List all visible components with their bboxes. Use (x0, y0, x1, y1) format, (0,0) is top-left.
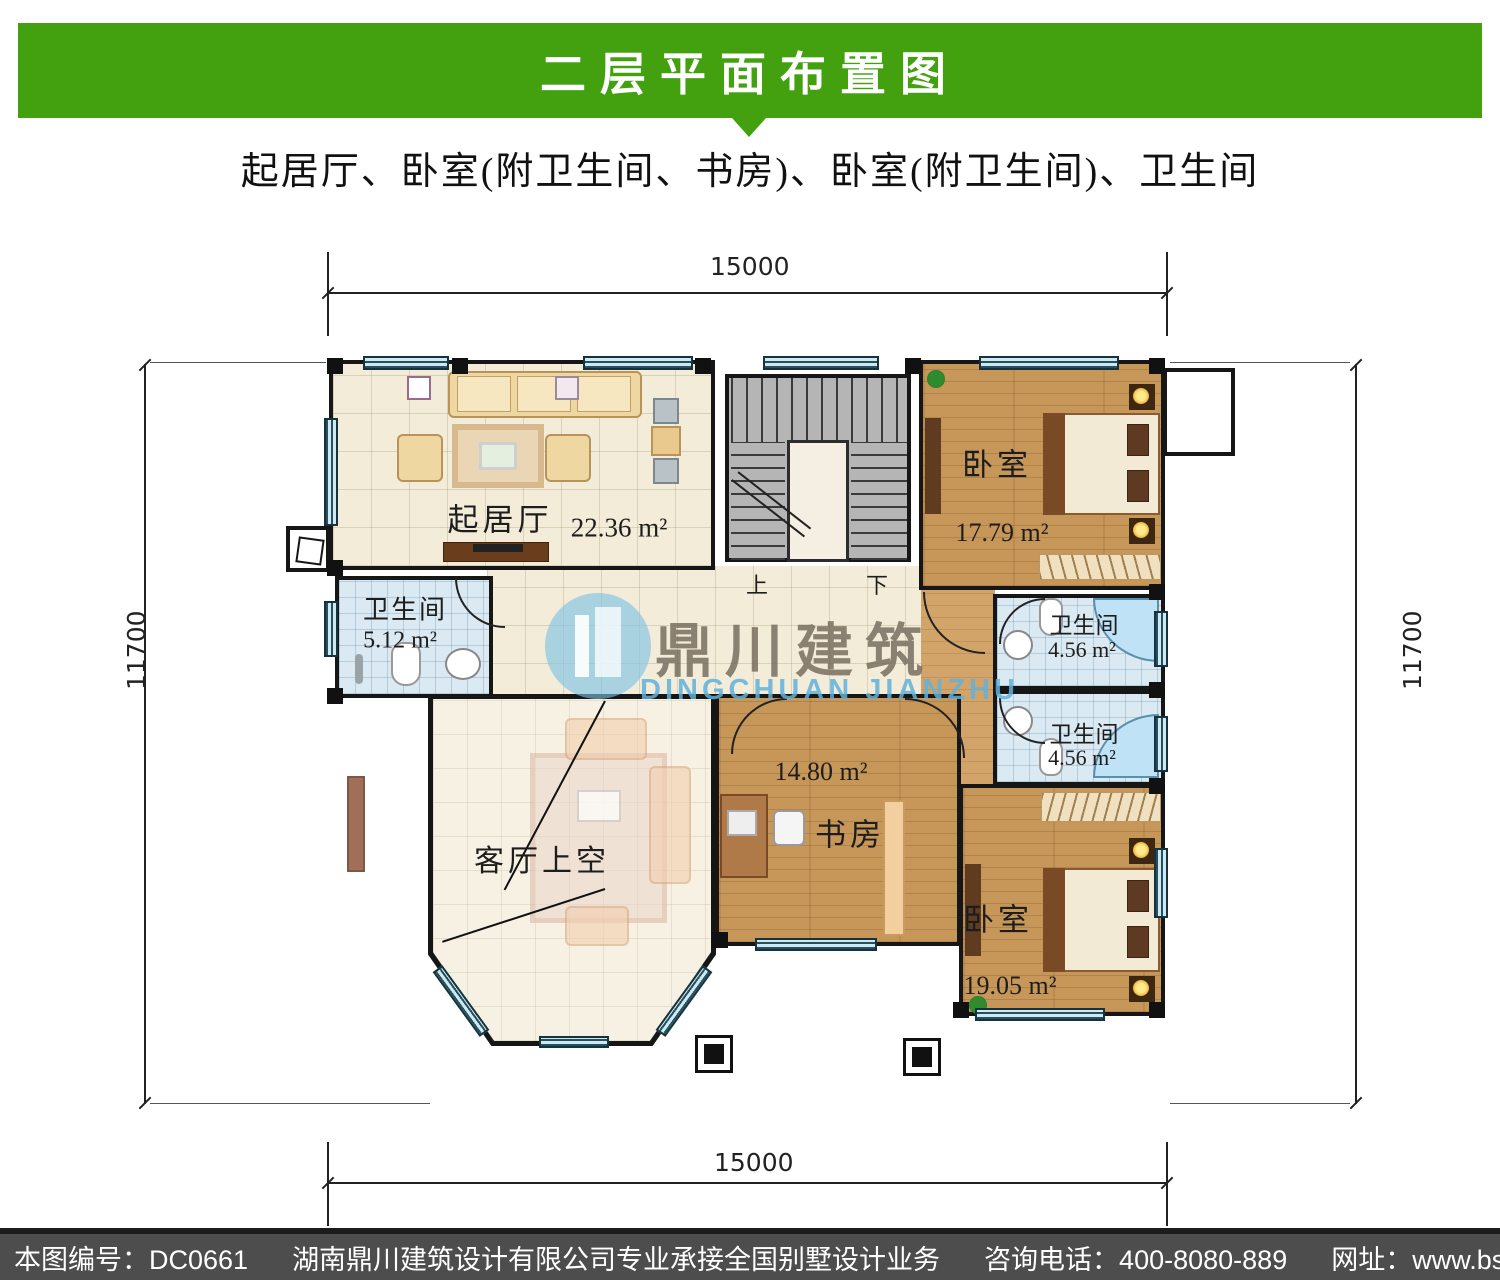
floor-plan: 上 下 (327, 358, 1168, 1105)
tv (473, 544, 523, 552)
nightstand-lamp (1129, 838, 1155, 864)
dim-ext (150, 362, 326, 363)
label-living-name: 起居厅 (448, 495, 553, 540)
column (1149, 584, 1165, 600)
page-title: 二层平面布置图 (540, 38, 960, 104)
column (695, 358, 711, 374)
window (363, 356, 449, 370)
bay-window (539, 1036, 609, 1048)
stair-down-label: 下 (866, 568, 888, 600)
dim-ext (1170, 362, 1350, 363)
living-armchair-left (397, 434, 443, 482)
column (1149, 682, 1165, 698)
window (979, 356, 1119, 370)
bed-foot-runner (1043, 868, 1065, 972)
porch-column-core (912, 1047, 932, 1067)
label-bath-upper-area: 4.56 m² (1048, 637, 1116, 663)
living-coffee-table (479, 442, 517, 470)
pillow (1127, 424, 1149, 456)
dim-bottom-value: 15000 (714, 1148, 794, 1177)
column (327, 688, 343, 704)
wall-jut (1163, 368, 1235, 456)
label-bath-upper-name: 卫生间 (1050, 606, 1119, 640)
label-bath-lower-name: 卫生间 (1050, 715, 1119, 749)
window (583, 356, 693, 370)
pillow (1127, 470, 1149, 502)
void-table (577, 790, 621, 822)
label-bath-lower-area: 4.56 m² (1048, 745, 1116, 771)
dim-ext (1170, 1103, 1350, 1104)
bedroom-tv-cabinet (925, 418, 941, 514)
bedroom-rug (1039, 554, 1161, 580)
column (327, 358, 343, 374)
stair-steps-right (851, 442, 907, 560)
nightstand-lamp (1129, 518, 1155, 544)
living-decor-frame (555, 376, 579, 400)
living-armchair-right (545, 434, 591, 482)
void-sofa-right (649, 766, 691, 884)
void-cabinet (347, 776, 365, 872)
wardrobe (1041, 792, 1161, 822)
stair-up-label: 上 (746, 568, 768, 600)
dim-line-left (144, 364, 146, 1104)
porch-column-core (704, 1044, 724, 1064)
label-bath-left-name: 卫生间 (363, 590, 447, 627)
study-chair (773, 810, 805, 846)
dim-line-bottom (327, 1182, 1168, 1184)
footer-company: 湖南鼎川建筑设计有限公司专业承接全国别墅设计业务 (292, 1238, 940, 1277)
dim-top-value: 15000 (710, 252, 790, 281)
label-bath-left-area: 5.12 m² (363, 628, 437, 655)
label-bedroom-bottom-area: 19.05 m² (963, 971, 1056, 1001)
pillow (1127, 926, 1149, 958)
porch-column (695, 1035, 733, 1073)
stair-steps-top (731, 378, 907, 442)
window (1154, 716, 1168, 772)
banner-pointer-triangle (732, 118, 766, 137)
column (1149, 1002, 1165, 1018)
dining-table (651, 426, 681, 456)
desk-monitor (727, 810, 757, 836)
window (324, 601, 338, 657)
dim-line-right (1355, 364, 1357, 1104)
plant (927, 370, 945, 388)
window (324, 418, 338, 526)
column (1149, 778, 1165, 794)
nightstand-lamp (1129, 384, 1155, 410)
shower-head (355, 654, 363, 684)
dim-line-top (327, 292, 1168, 294)
footer-bar: 本图编号：DC0661 湖南鼎川建筑设计有限公司专业承接全国别墅设计业务 咨询电… (0, 1234, 1500, 1280)
label-bedroom-top-area: 17.79 m² (955, 518, 1048, 548)
nightstand-lamp (1129, 976, 1155, 1002)
label-study-area: 14.80 m² (774, 757, 867, 787)
dim-left-value: 11700 (122, 610, 151, 690)
window (755, 938, 877, 951)
column (905, 358, 921, 374)
porch-column (903, 1038, 941, 1076)
column (1149, 358, 1165, 374)
dining-chair (653, 458, 679, 484)
dining-chair (653, 398, 679, 424)
bed-foot-runner (1043, 413, 1065, 515)
footer-website: 网址：www.bstzcs.com (1331, 1238, 1500, 1277)
footer-plan-number: 本图编号：DC0661 (14, 1238, 248, 1277)
living-decor-frame (407, 376, 431, 400)
study-shelf (883, 800, 905, 936)
stair-landing (787, 440, 849, 562)
label-study-name: 书房 (815, 810, 885, 855)
window (763, 356, 879, 370)
hallway (487, 566, 923, 702)
void-sofa-bottom (565, 906, 629, 946)
dim-right-value: 11700 (1398, 610, 1427, 690)
column (327, 560, 343, 576)
study-desk (720, 794, 768, 878)
chimney-flue (295, 536, 324, 565)
window (1154, 611, 1168, 667)
window (975, 1008, 1105, 1021)
window (1154, 848, 1168, 918)
label-void-name: 客厅上空 (474, 836, 610, 880)
footer-phone: 咨询电话：400-8080-889 (984, 1238, 1287, 1277)
pillow (1127, 880, 1149, 912)
column (712, 932, 728, 948)
column (452, 358, 468, 374)
sofa-cushion (457, 376, 511, 412)
column (953, 1002, 969, 1018)
label-bedroom-bottom-name: 卧室 (963, 895, 1033, 940)
sofa-cushion (577, 376, 631, 412)
title-banner: 二层平面布置图 (18, 23, 1482, 118)
plan-subtitle: 起居厅、卧室(附卫生间、书房)、卧室(附卫生间)、卫生间 (0, 140, 1500, 195)
label-living-area: 22.36 m² (571, 513, 668, 544)
label-bedroom-top-name: 卧室 (962, 440, 1032, 485)
sink (445, 648, 481, 680)
